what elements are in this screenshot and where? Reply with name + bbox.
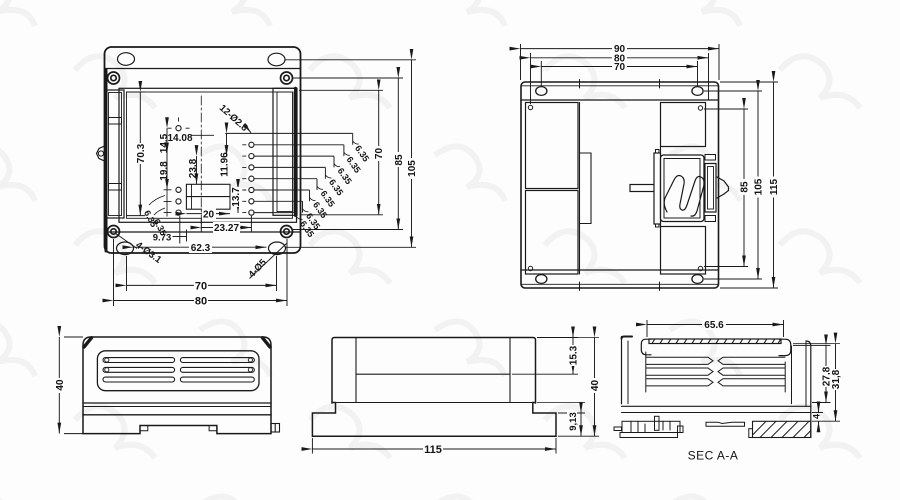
svg-text:40: 40	[55, 379, 66, 391]
svg-text:SEC A-A: SEC A-A	[688, 449, 739, 463]
svg-text:85: 85	[740, 181, 751, 193]
svg-text:9,13: 9,13	[568, 412, 579, 431]
svg-text:70: 70	[195, 281, 207, 293]
svg-text:65.6: 65.6	[704, 320, 724, 331]
svg-text:105: 105	[407, 160, 418, 177]
svg-text:80: 80	[195, 296, 207, 308]
svg-text:70.3: 70.3	[136, 143, 147, 163]
svg-text:14.5: 14.5	[159, 133, 170, 153]
svg-text:11.96: 11.96	[220, 152, 231, 177]
svg-text:15.3: 15.3	[569, 345, 580, 365]
svg-text:70: 70	[374, 148, 385, 160]
svg-text:40: 40	[590, 380, 601, 392]
svg-text:14.08: 14.08	[168, 133, 193, 144]
svg-text:115: 115	[769, 178, 780, 195]
svg-text:115: 115	[424, 444, 442, 456]
svg-text:23.27: 23.27	[214, 223, 239, 234]
svg-text:4: 4	[812, 414, 822, 419]
svg-text:31,8: 31,8	[831, 369, 842, 389]
svg-text:19.8: 19.8	[159, 161, 170, 181]
svg-text:20: 20	[203, 209, 215, 220]
svg-text:62.3: 62.3	[191, 243, 211, 254]
svg-text:85: 85	[394, 154, 405, 166]
svg-text:105: 105	[754, 178, 765, 195]
svg-text:13.7: 13.7	[231, 187, 242, 207]
svg-text:70: 70	[614, 62, 626, 73]
svg-text:23.8: 23.8	[188, 158, 199, 178]
